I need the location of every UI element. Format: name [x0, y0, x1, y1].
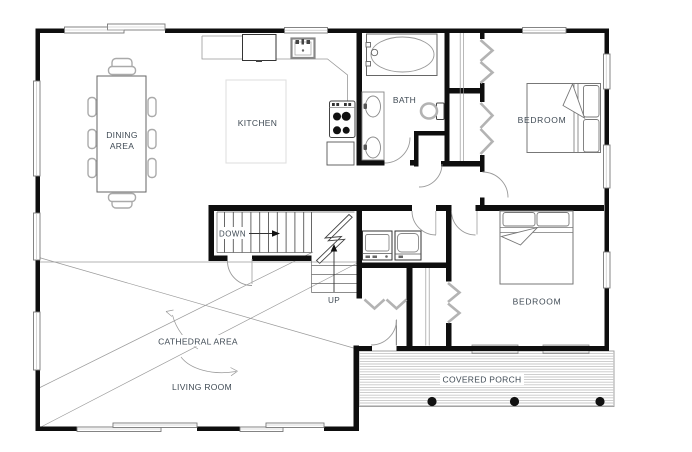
svg-text:DOWN: DOWN — [219, 230, 246, 239]
svg-text:AREA: AREA — [110, 141, 134, 151]
svg-text:BEDROOM: BEDROOM — [518, 115, 567, 125]
svg-text:LIVING ROOM: LIVING ROOM — [172, 382, 232, 392]
svg-text:KITCHEN: KITCHEN — [238, 118, 277, 128]
svg-text:BEDROOM: BEDROOM — [513, 297, 562, 307]
svg-text:UP: UP — [328, 296, 340, 305]
svg-text:DINING: DINING — [106, 130, 138, 140]
svg-text:CATHEDRAL AREA: CATHEDRAL AREA — [158, 337, 238, 347]
svg-text:BATH: BATH — [393, 95, 416, 105]
svg-text:COVERED PORCH: COVERED PORCH — [443, 375, 522, 385]
